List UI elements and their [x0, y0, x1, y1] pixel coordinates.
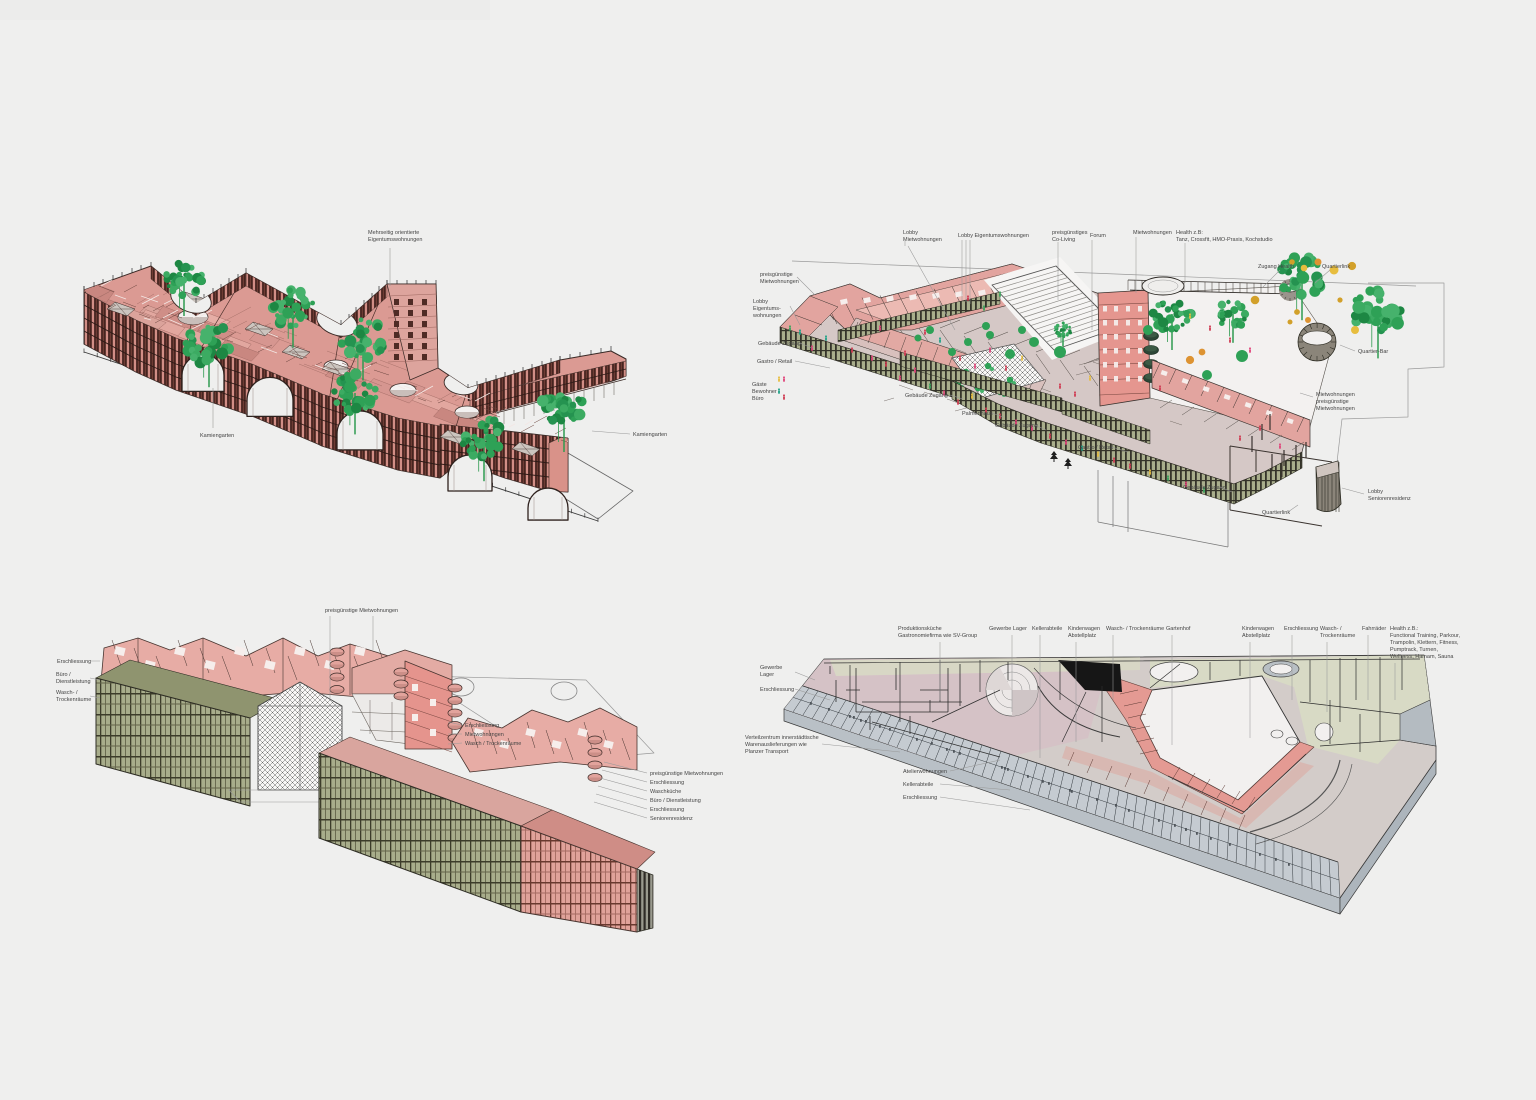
- svg-text:Quartierlink: Quartierlink: [1322, 264, 1350, 270]
- svg-text:Kellerabteile: Kellerabteile: [1032, 626, 1062, 632]
- svg-text:Gartenhof: Gartenhof: [1166, 626, 1191, 632]
- svg-text:preisgünstige: preisgünstige: [760, 272, 793, 278]
- svg-text:Forum: Forum: [1090, 233, 1106, 239]
- svg-text:Pumptrack, Turnen,: Pumptrack, Turnen,: [1390, 647, 1438, 653]
- svg-text:Trockenräume: Trockenräume: [56, 697, 91, 703]
- svg-text:Gebäude Zugang: Gebäude Zugang: [995, 423, 1038, 429]
- svg-text:Büro: Büro: [752, 396, 764, 402]
- svg-text:Gewerbe: Gewerbe: [760, 665, 782, 671]
- svg-text:Mietwohnungen: Mietwohnungen: [1316, 406, 1355, 412]
- svg-text:Wasch- / Trockenräume: Wasch- / Trockenräume: [1106, 626, 1164, 632]
- svg-text:Wasch- /: Wasch- /: [1320, 626, 1342, 632]
- svg-text:Warenauslieferungen wie: Warenauslieferungen wie: [745, 742, 807, 748]
- svg-text:Kellerabteile: Kellerabteile: [903, 782, 933, 788]
- svg-text:Erschliessung: Erschliessung: [57, 659, 91, 665]
- svg-text:Mietwohnungen: Mietwohnungen: [1316, 392, 1355, 398]
- svg-text:Erschliessung: Erschliessung: [760, 687, 794, 693]
- svg-text:Erschliessung: Erschliessung: [465, 723, 499, 729]
- svg-text:Health z.B:: Health z.B:: [1176, 230, 1203, 236]
- svg-text:Gebäude Zugang: Gebäude Zugang: [905, 393, 948, 399]
- svg-text:Abstellplatz: Abstellplatz: [1242, 633, 1270, 639]
- svg-text:Eigentumswohnungen: Eigentumswohnungen: [368, 237, 422, 243]
- svg-text:Kamiengarten: Kamiengarten: [200, 433, 234, 439]
- svg-text:Planzer Transport: Planzer Transport: [745, 749, 789, 755]
- svg-text:Erschliessung: Erschliessung: [650, 780, 684, 786]
- svg-text:Quartierlink: Quartierlink: [1262, 510, 1290, 516]
- svg-text:Lobby: Lobby: [1368, 489, 1383, 495]
- svg-text:preisgünstige Mietwohnungen: preisgünstige Mietwohnungen: [325, 608, 398, 614]
- svg-text:Mietwohnungen: Mietwohnungen: [903, 237, 942, 243]
- svg-text:preisgünstige: preisgünstige: [1316, 399, 1349, 405]
- svg-text:Kamiengarten: Kamiengarten: [633, 432, 667, 438]
- svg-text:Fahrräder: Fahrräder: [1362, 626, 1386, 632]
- svg-text:Gewerbe Lager: Gewerbe Lager: [989, 626, 1027, 632]
- svg-text:Gastronomiefirma wie SV-Group: Gastronomiefirma wie SV-Group: [898, 633, 977, 639]
- svg-text:preisgünstiges: preisgünstiges: [1052, 230, 1088, 236]
- svg-text:Dienstleistung: Dienstleistung: [56, 679, 91, 685]
- svg-text:Functional Training, Parkour,: Functional Training, Parkour,: [1390, 633, 1460, 639]
- svg-text:Wasch- /: Wasch- /: [56, 690, 78, 696]
- svg-text:Kinderwagen: Kinderwagen: [1068, 626, 1100, 632]
- svg-text:Trampolin, Klettern, Fitness,: Trampolin, Klettern, Fitness,: [1390, 640, 1459, 646]
- svg-text:Wasch / Trockenräume: Wasch / Trockenräume: [465, 741, 521, 747]
- svg-text:Seniorenresidenz: Seniorenresidenz: [1368, 496, 1411, 502]
- svg-text:Tanz, Crossfit, HMO-Praxis, Ko: Tanz, Crossfit, HMO-Praxis, Kochstudio: [1176, 237, 1273, 243]
- svg-text:preisgünstige Mietwohnungen: preisgünstige Mietwohnungen: [650, 771, 723, 777]
- svg-text:Health z.B.:: Health z.B.:: [1390, 626, 1419, 632]
- svg-text:Büro /: Büro /: [56, 672, 71, 678]
- svg-text:Eigentums-: Eigentums-: [753, 306, 781, 312]
- svg-text:Produktionsküche: Produktionsküche: [898, 626, 942, 632]
- svg-text:Verteilzentrum innerstädtische: Verteilzentrum innerstädtische: [745, 735, 819, 741]
- svg-text:Kinderwagen: Kinderwagen: [1242, 626, 1274, 632]
- svg-text:Erschliessung: Erschliessung: [903, 795, 937, 801]
- svg-text:Erschliessung: Erschliessung: [1284, 626, 1318, 632]
- svg-text:Quartier-Bar: Quartier-Bar: [1358, 349, 1388, 355]
- svg-text:Atelierwohnungen: Atelierwohnungen: [903, 769, 947, 775]
- svg-text:Seniorenresidenz: Seniorenresidenz: [650, 816, 693, 822]
- svg-text:Gäste: Gäste: [752, 382, 767, 388]
- svg-text:Lobby: Lobby: [753, 299, 768, 305]
- svg-text:Lobby: Lobby: [903, 230, 918, 236]
- svg-text:Gebäude Zugang: Gebäude Zugang: [1183, 485, 1226, 491]
- svg-text:Büro / Dienstleistung: Büro / Dienstleistung: [650, 798, 701, 804]
- svg-text:Lobby Eigentumswohnungen: Lobby Eigentumswohnungen: [958, 233, 1029, 239]
- svg-text:Waschküche: Waschküche: [650, 789, 681, 795]
- svg-text:Bewohner: Bewohner: [752, 389, 777, 395]
- svg-text:wohnungen: wohnungen: [752, 313, 781, 319]
- svg-text:Abstellplatz: Abstellplatz: [1068, 633, 1096, 639]
- svg-text:Gastro / Retail: Gastro / Retail: [1078, 445, 1113, 451]
- svg-text:Zugang Health: Zugang Health: [1258, 264, 1294, 270]
- svg-text:Mietwohnungen: Mietwohnungen: [760, 279, 799, 285]
- svg-text:Wellness, Hamam, Sauna: Wellness, Hamam, Sauna: [1390, 654, 1454, 660]
- svg-text:Gastro / Retail: Gastro / Retail: [757, 359, 792, 365]
- svg-text:Erschliessung: Erschliessung: [650, 807, 684, 813]
- svg-text:Gebäude Zugang: Gebäude Zugang: [758, 341, 801, 347]
- svg-text:Trockenräume: Trockenräume: [1320, 633, 1355, 639]
- svg-text:Mietwohnungen: Mietwohnungen: [465, 732, 504, 738]
- svg-text:Lager: Lager: [760, 672, 774, 678]
- svg-text:Mehrseitig orientierte: Mehrseitig orientierte: [368, 230, 419, 236]
- svg-text:Palmenhaus: Palmenhaus: [962, 411, 993, 417]
- svg-text:Mietwohnungen: Mietwohnungen: [1133, 230, 1172, 236]
- svg-text:Co-Living: Co-Living: [1052, 237, 1075, 243]
